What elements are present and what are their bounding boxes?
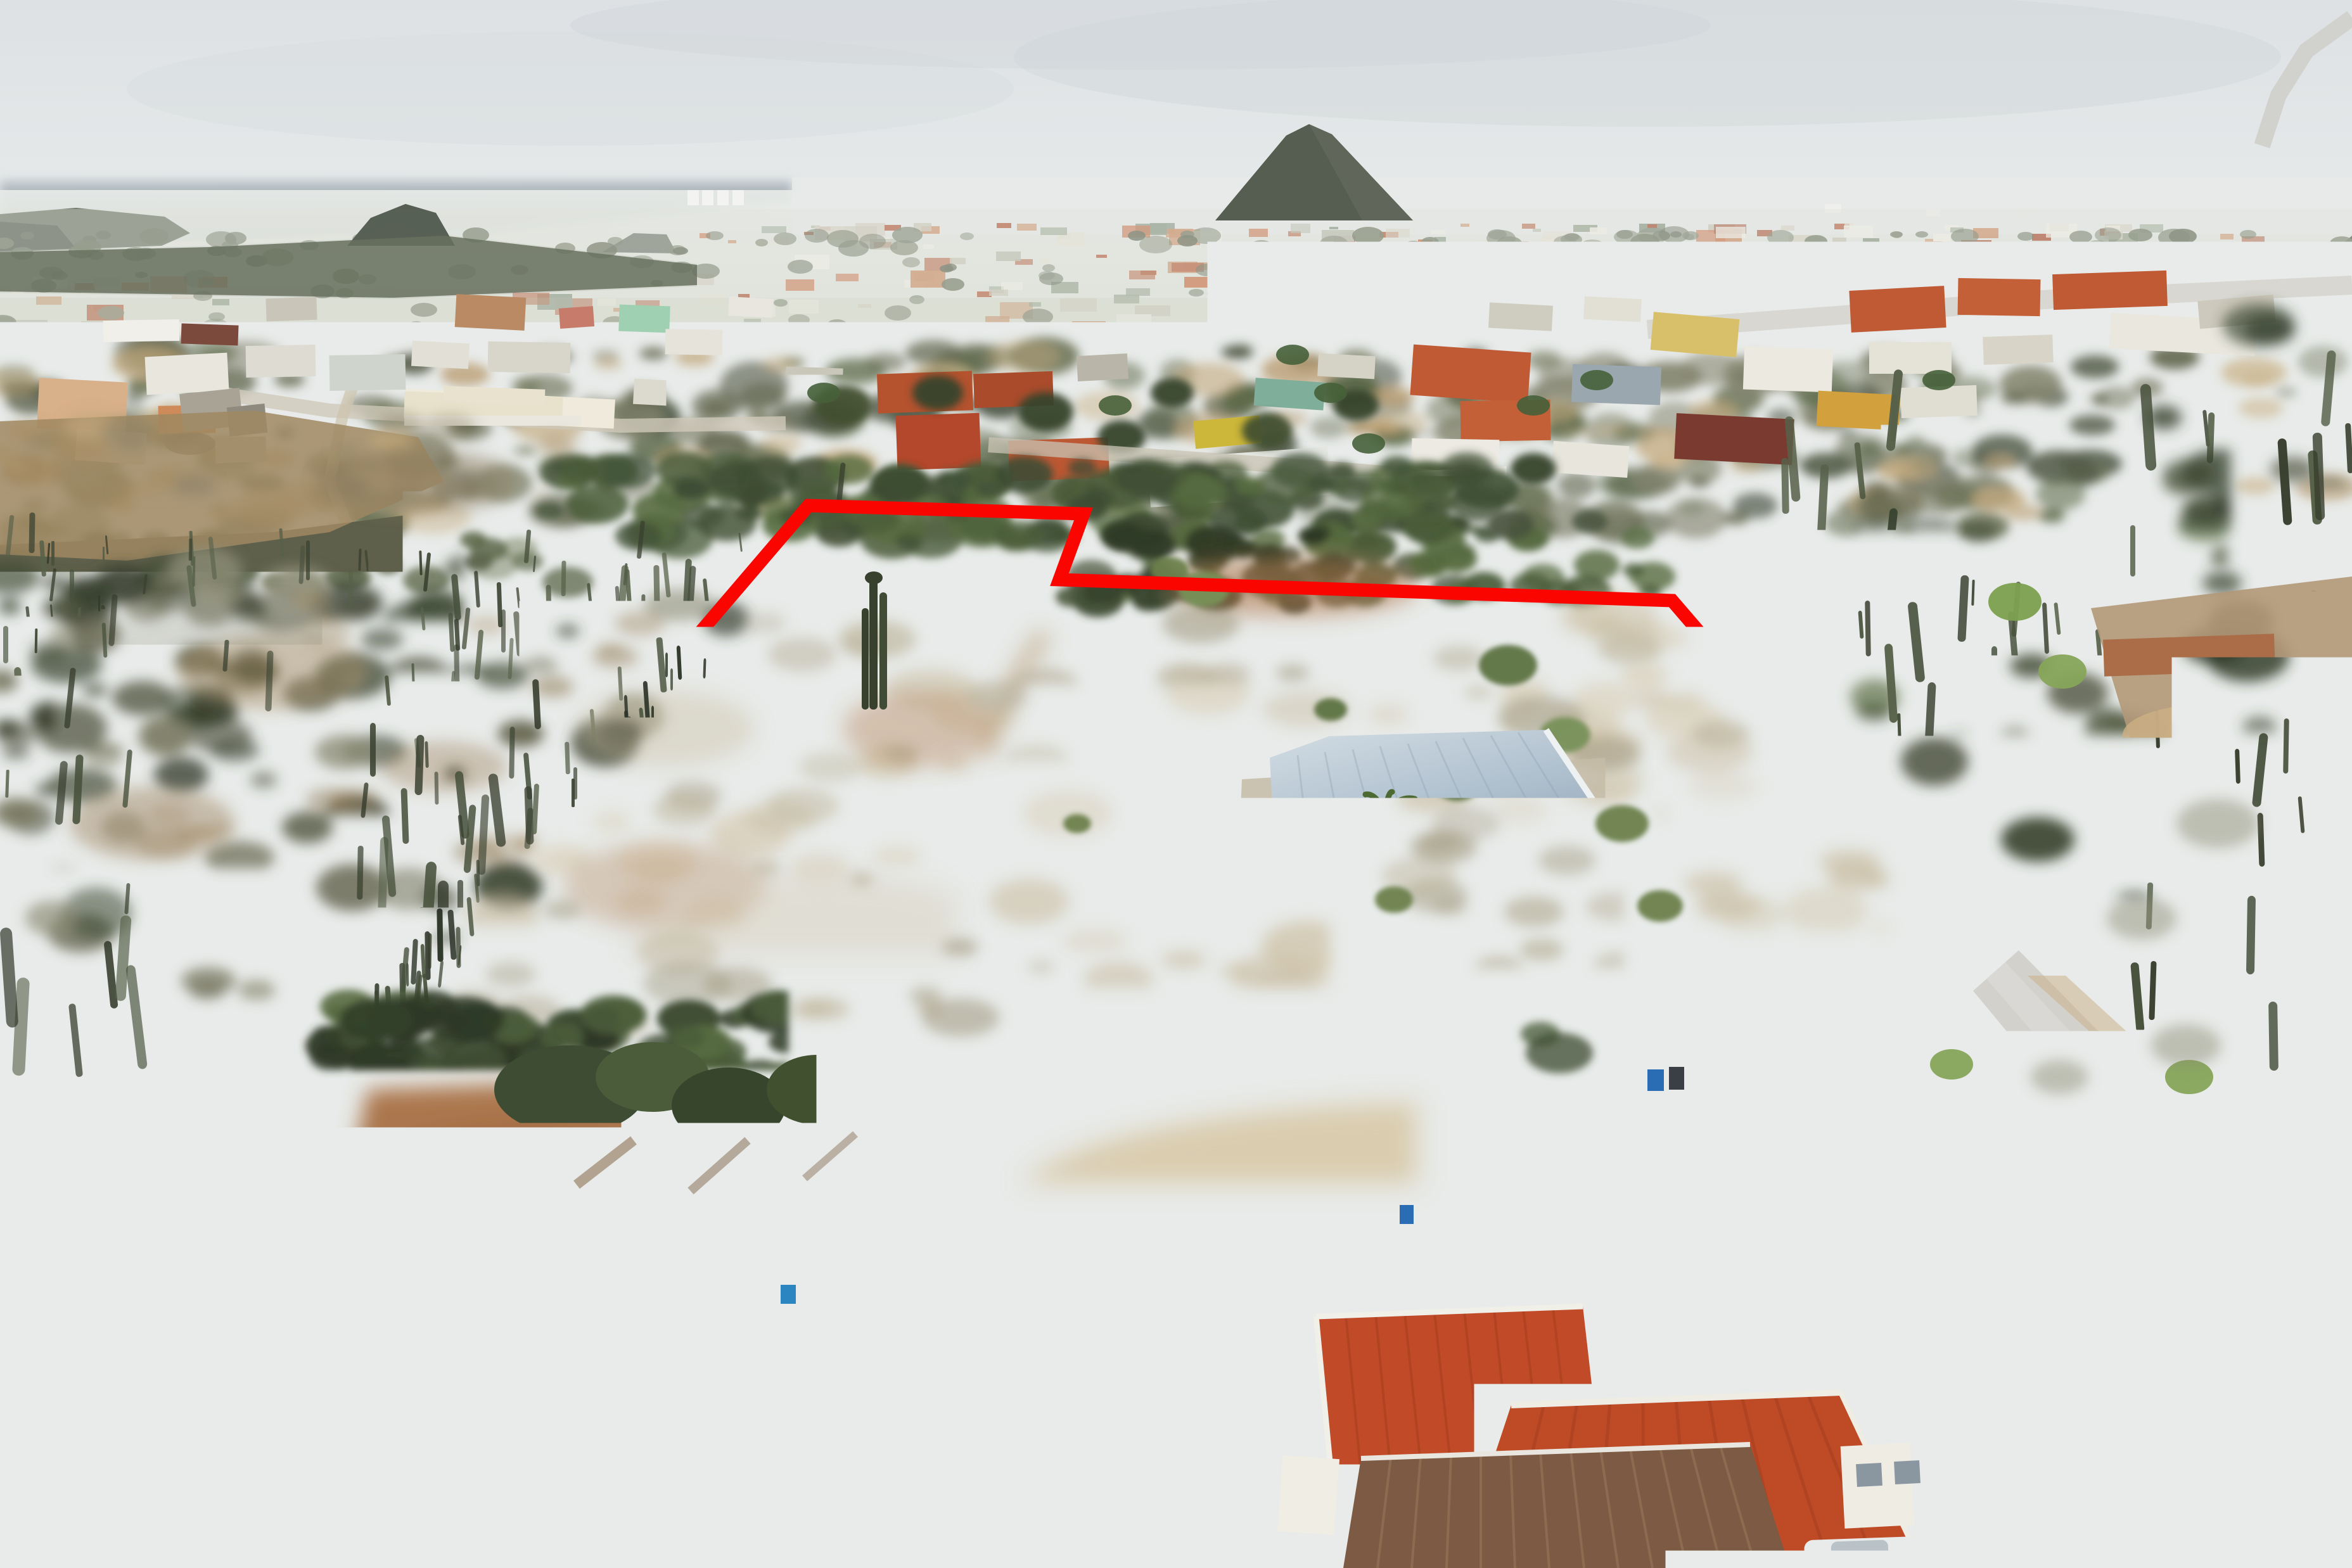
- svg-text:6974 m2: 6974 m2: [782, 666, 1127, 779]
